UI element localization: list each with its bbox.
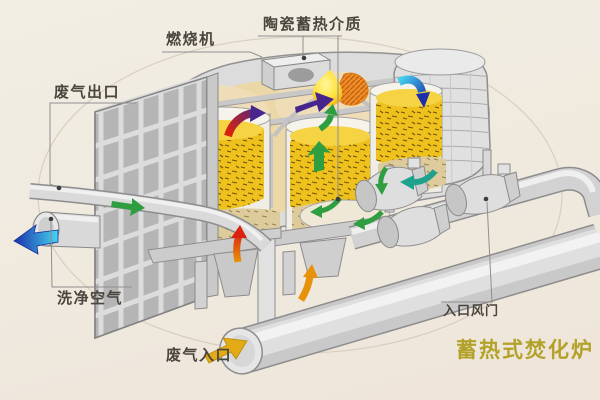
label-burner: 燃烧机 bbox=[166, 32, 216, 47]
label-inlet-damper: 入口风门 bbox=[443, 305, 499, 318]
label-ceramic-media: 陶瓷蓄热介质 bbox=[263, 17, 362, 32]
incinerator-diagram-page: 陶瓷蓄热介质 燃烧机 废气出口 洗净空气 废气入口 入口风门 蓄热式焚化炉 bbox=[0, 0, 600, 400]
burner-leader bbox=[162, 52, 262, 57]
ceramic-bed-3 bbox=[376, 89, 442, 165]
label-exhaust-outlet: 废气出口 bbox=[54, 85, 120, 100]
page-title: 蓄热式焚化炉 bbox=[456, 340, 594, 361]
label-exhaust-inlet: 废气入口 bbox=[166, 348, 232, 363]
canister-top-cap bbox=[395, 49, 485, 75]
label-clean-air: 洗净空气 bbox=[57, 291, 123, 306]
